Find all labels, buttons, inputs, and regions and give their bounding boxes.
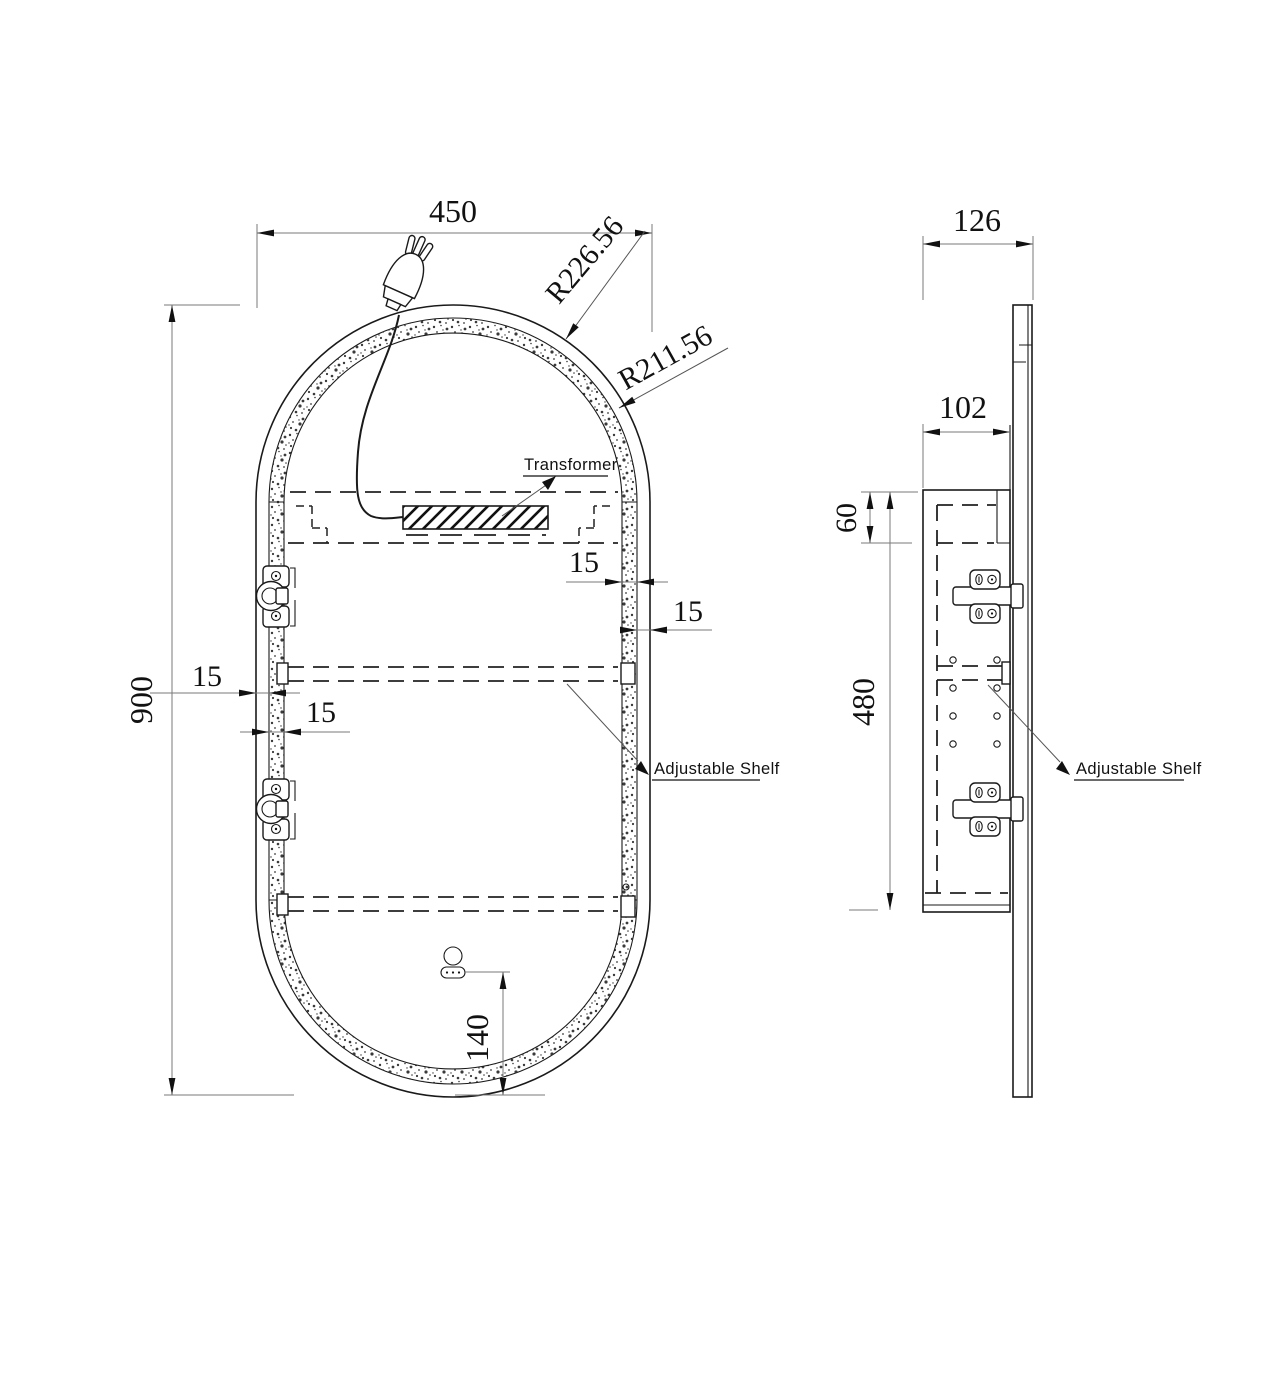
svg-text:15: 15 xyxy=(306,696,336,729)
bottom-shelf-support-left xyxy=(277,894,288,915)
adjustable-shelf-label-side: Adjustable Shelf xyxy=(1076,760,1202,778)
dim-strip-right-15: 15 xyxy=(566,546,668,585)
dim-radius-outer: R226.56 xyxy=(539,210,645,341)
svg-text:102: 102 xyxy=(939,389,987,425)
adjustable-shelf-lines xyxy=(277,663,635,684)
transformer-label: Transformer xyxy=(524,456,618,474)
dim-radius-inner: R211.56 xyxy=(613,319,728,411)
shelf-callout-front: Adjustable Shelf xyxy=(567,684,780,780)
shelf-callout-side: Adjustable Shelf xyxy=(988,685,1202,780)
svg-text:R211.56: R211.56 xyxy=(613,319,718,397)
svg-text:480: 480 xyxy=(845,678,881,726)
svg-text:126: 126 xyxy=(953,202,1001,238)
shelf-pin-holes xyxy=(950,657,1000,747)
transformer-box xyxy=(403,506,548,535)
svg-text:140: 140 xyxy=(459,1014,495,1062)
dim-top-compartment-60: 60 xyxy=(830,492,918,543)
hinge-icon-front-bottom xyxy=(257,779,296,840)
transformer-leader-arrow xyxy=(542,476,556,490)
technical-drawing-sheet: Transformer Adjustable Shelf xyxy=(0,0,1285,1400)
shelf-support-left xyxy=(277,663,288,684)
compartment-bracket-right xyxy=(579,506,610,543)
mirror-panel xyxy=(1013,305,1032,1097)
dim-height-900: 900 xyxy=(123,305,294,1095)
svg-text:R226.56: R226.56 xyxy=(539,210,630,310)
shelf-support-right xyxy=(621,663,635,684)
svg-text:15: 15 xyxy=(673,595,703,628)
side-view: 126 102 60 480 xyxy=(830,202,1202,1097)
svg-text:450: 450 xyxy=(429,193,477,229)
touch-sensor-icon xyxy=(441,947,465,978)
mirror-cabinet-drawing: Transformer Adjustable Shelf xyxy=(0,0,1285,1400)
bottom-shelf-support-right xyxy=(621,896,635,917)
adjustable-shelf-label-front: Adjustable Shelf xyxy=(654,760,780,778)
svg-text:60: 60 xyxy=(830,503,863,533)
adjustable-shelf-side xyxy=(937,662,1010,684)
dim-overall-depth-126: 126 xyxy=(923,202,1033,300)
shelf-leader-arrow-side xyxy=(1056,761,1070,775)
power-plug-icon xyxy=(376,230,439,315)
bottom-shelf-lines xyxy=(277,884,635,917)
dim-cabinet-depth-102: 102 xyxy=(923,389,1010,488)
dim-cabinet-height-480: 480 xyxy=(845,492,893,910)
compartment-bracket-left xyxy=(296,506,327,543)
hinge-icon-front-top xyxy=(257,566,296,627)
svg-text:900: 900 xyxy=(123,676,159,724)
svg-text:15: 15 xyxy=(569,546,599,579)
svg-text:15: 15 xyxy=(192,660,222,693)
front-view: Transformer Adjustable Shelf xyxy=(123,193,780,1097)
